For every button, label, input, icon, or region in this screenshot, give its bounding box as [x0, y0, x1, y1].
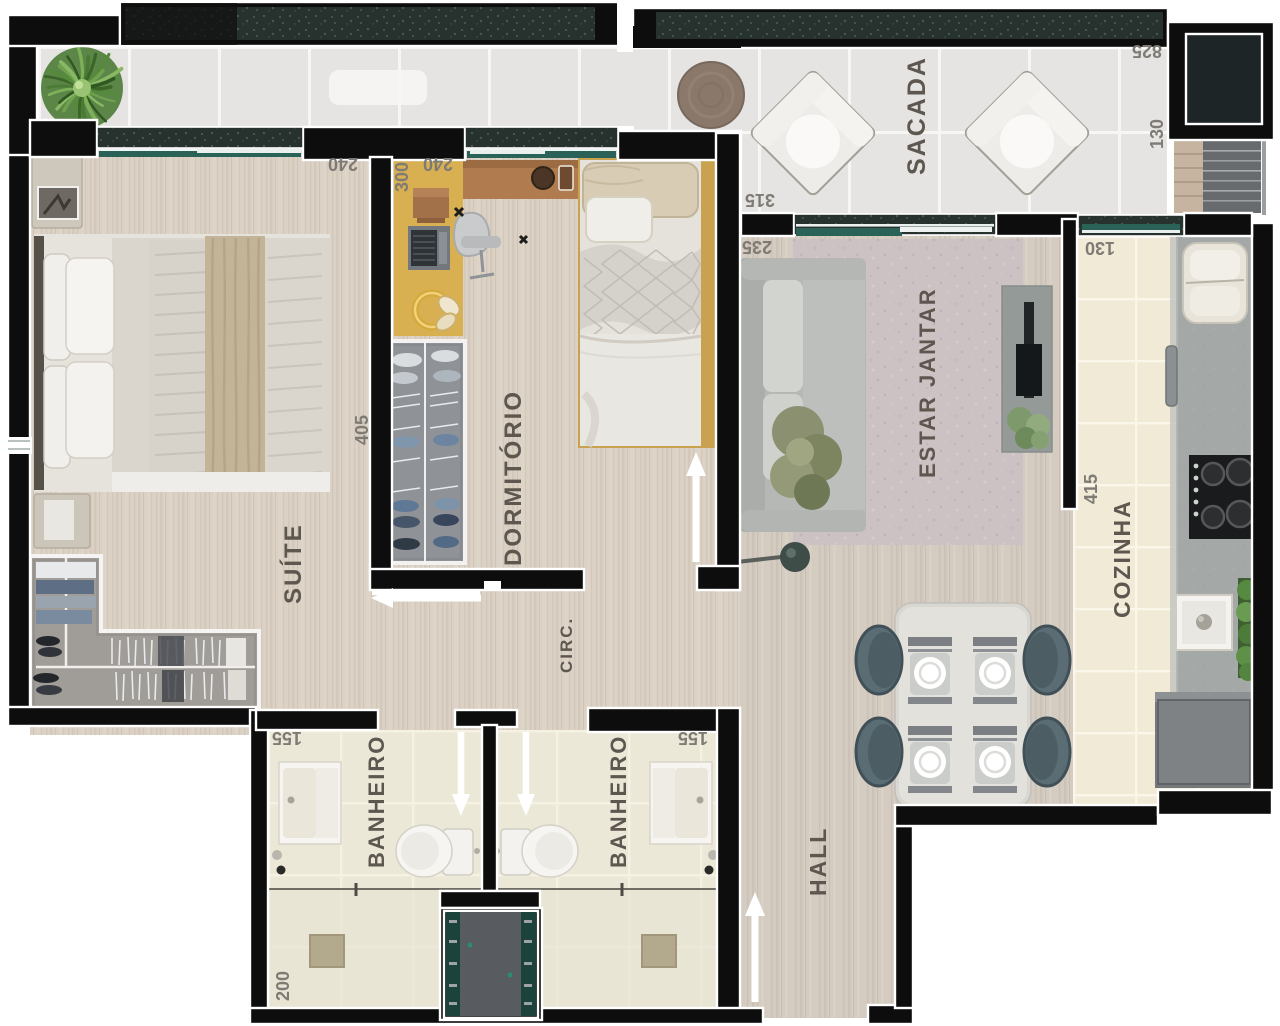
svg-text:BANHEIRO: BANHEIRO — [606, 735, 631, 868]
svg-text:130: 130 — [1085, 238, 1115, 258]
svg-text:240: 240 — [328, 154, 358, 174]
svg-text:130: 130 — [1147, 119, 1167, 149]
svg-text:COZINHA: COZINHA — [1109, 499, 1135, 618]
svg-text:155: 155 — [272, 728, 302, 748]
svg-text:SUÍTE: SUÍTE — [279, 523, 307, 604]
svg-text:405: 405 — [352, 415, 372, 445]
svg-text:200: 200 — [273, 971, 293, 1001]
svg-text:CIRC.: CIRC. — [557, 617, 576, 673]
svg-text:ESTAR JANTAR: ESTAR JANTAR — [915, 287, 940, 478]
svg-text:235: 235 — [742, 237, 772, 257]
svg-text:415: 415 — [1081, 474, 1101, 504]
svg-text:300: 300 — [392, 162, 412, 192]
svg-text:825: 825 — [1132, 41, 1162, 61]
svg-text:HALL: HALL — [805, 827, 831, 896]
svg-text:DORMITÓRIO: DORMITÓRIO — [499, 390, 527, 566]
svg-text:BANHEIRO: BANHEIRO — [364, 735, 389, 868]
svg-text:240: 240 — [423, 154, 453, 174]
svg-text:315: 315 — [745, 190, 775, 210]
svg-text:SACADA: SACADA — [903, 56, 931, 175]
svg-text:155: 155 — [678, 728, 708, 748]
